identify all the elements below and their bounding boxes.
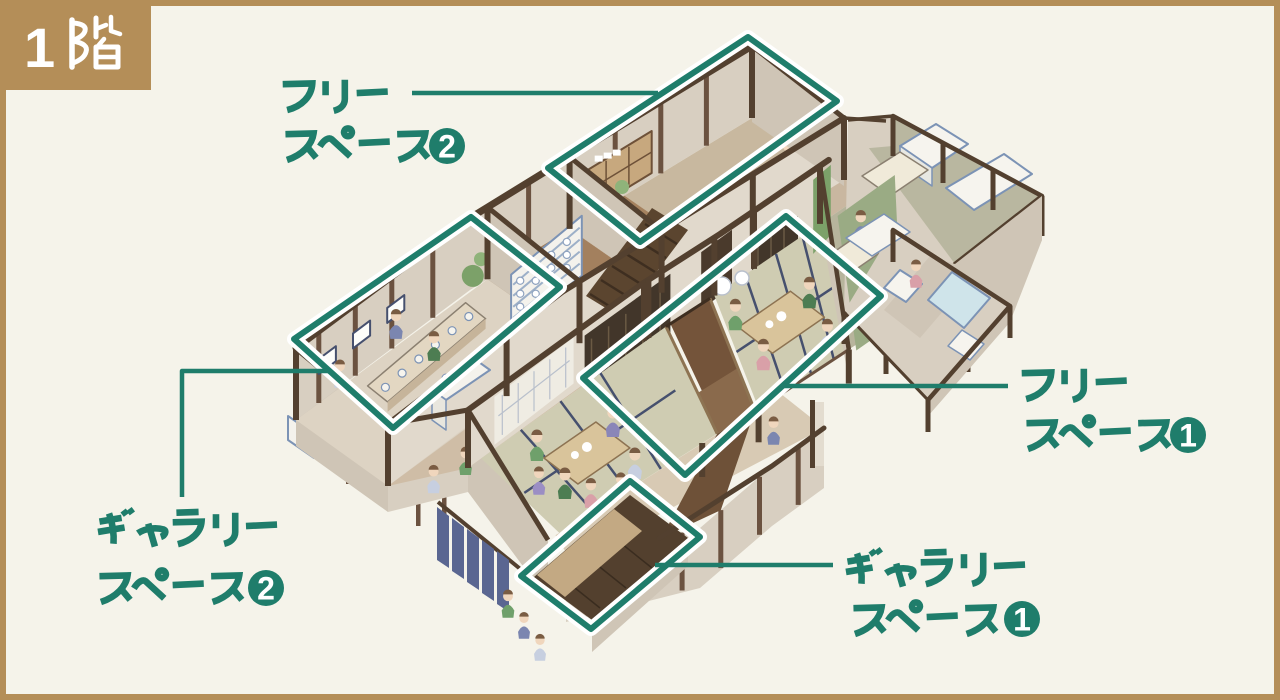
- svg-text:2: 2: [257, 571, 275, 607]
- svg-text:1: 1: [1013, 602, 1031, 638]
- svg-text:1: 1: [24, 16, 55, 79]
- svg-text:2: 2: [438, 129, 456, 165]
- svg-text:1: 1: [1179, 418, 1197, 454]
